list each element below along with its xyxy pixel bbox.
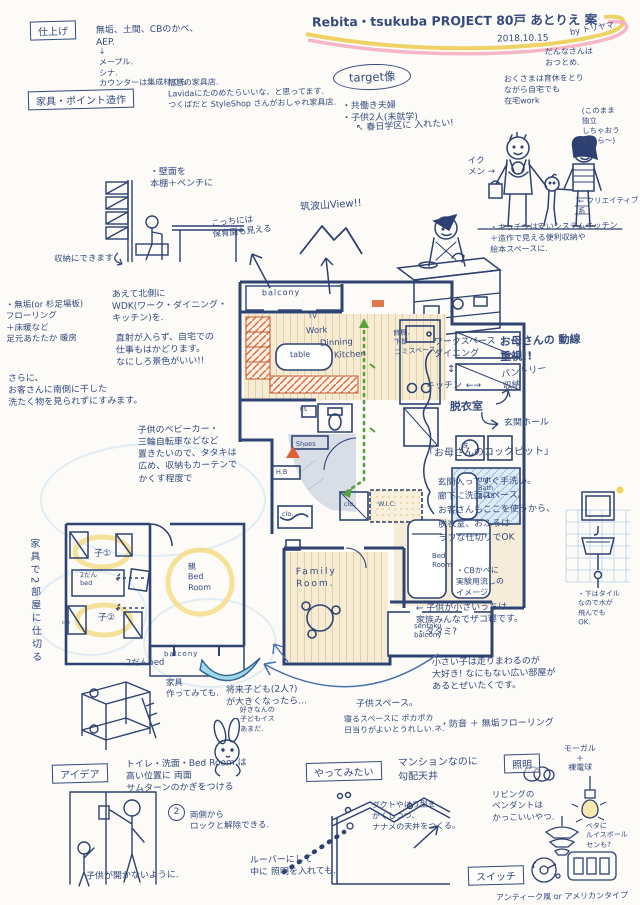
work-light-note: 直射が入らず、自宅での 仕事もはかどります。 なにしろ景色がいい!! — [116, 331, 215, 369]
flow-entrance-hall: 玄関ホール — [504, 417, 549, 430]
idea-lock-note: トイレ・洗面・Bed Room は 高い位置に 両面 サムターンのかぎをつける — [126, 757, 247, 796]
flow-pantry: パントリー 収納 — [501, 363, 549, 393]
antique-switch-sketch — [528, 854, 564, 890]
future-parent-label: 親 Bed Room — [188, 562, 211, 594]
creative-label: ← クリエイティブ 系 — [578, 195, 639, 216]
try-label-box: やってみたい — [306, 761, 382, 782]
furniture-label-box: 家具・ポイント造作 — [28, 89, 134, 111]
plan-shoes-label: Shoes — [296, 440, 316, 449]
target-solo-note: (このまま 独立 しちゃおう かしら〜) — [582, 106, 620, 147]
north-wdk-note: あえて北側に WDK(ワーク・ダイニング・ キッチン)を. — [112, 287, 228, 325]
flow-dressing-room: 脱衣室 — [450, 400, 483, 415]
plan-wic-label: W.I.C. — [378, 500, 396, 509]
idea-childproof-note: 子供が開かないように. — [86, 869, 179, 883]
plan-balcony-label: balcony — [262, 288, 300, 299]
plan-closet-label: clo. — [344, 500, 355, 509]
plan-tv-label: TV — [308, 312, 317, 322]
flow-updown-arrow: ↕ — [447, 363, 456, 377]
plan-table-label: table — [290, 350, 310, 361]
flow-leftright-arrow: ←→ — [466, 380, 481, 392]
mountain-view-note: 筑波山View!! — [300, 197, 363, 215]
soundproof-note: ・防音 ＋ 無垢フローリング — [440, 717, 554, 731]
cockpit-note: 「お母さんのコックピット」 — [424, 445, 554, 461]
louis-poulsen-note: ベタに ルイスポール センも? — [586, 822, 628, 851]
running-note: 小さい子は走りまわるのが 大好き! なにもない広い部屋が あるとぜいたくです。 — [432, 655, 556, 694]
ikumen-label: イク メン → — [468, 156, 495, 179]
idea-label-box: アイデア — [52, 763, 108, 783]
zakone-note: ← 子供が小さいうちは、 家族みんなでザコ寝です。 ・タタミ? — [416, 601, 524, 639]
future-balcony-label: balcony — [164, 650, 199, 660]
plan-hb-label: H.B — [276, 468, 287, 477]
sink-sketch — [558, 486, 640, 596]
bunkbed-label: 2だんbed — [126, 658, 165, 670]
future-child2-label: 子② — [98, 612, 115, 624]
target-husband-note: だんなさんは おつとめ. — [545, 47, 593, 69]
sloped-ceiling-note: マンションなのに 勾配天井 — [398, 755, 478, 783]
switch-label-box: スイッチ — [468, 865, 524, 885]
duct-note: ダクトやはり型を かくしつつ、 ナナメの天井をつくる。 — [372, 799, 460, 833]
lighting-label-box: 照明 — [504, 754, 540, 774]
tile-floor-note: ・下はタイル なので水が 飛んでも OK. — [578, 590, 621, 628]
plan-entry-closet-label: clo. — [282, 510, 293, 519]
shelf-trash-note: 飾棚. 下部 ゴミスペース — [393, 327, 436, 358]
furniture-note: 福島の家具店. Lavidaにたのめたらいいな、と思ってます. つくばだと St… — [168, 76, 336, 111]
louver-note: ルーバーにして 中に 照明を入れても. — [250, 853, 336, 879]
kids-chair-note: 好きなんの 子どもイス あまだ. — [240, 706, 275, 735]
entry-storage-note: 子供のベビーカー・ 三輪自転車などなど 置きたいので、タタキは 広め、収納もカー… — [137, 423, 237, 485]
american-switch-sketch — [566, 848, 620, 886]
living-pendant-note: リビングの ペンダントは かっこいいやつ. — [492, 789, 555, 824]
plan-dinning-label: Dinning — [320, 337, 353, 350]
switch-types-note: アンティーク風 or アメリカンタイプ — [496, 891, 628, 904]
bunkbed-sketch — [62, 666, 166, 768]
plan-ps-label: PS — [300, 407, 307, 415]
nursery-view-note: こっちには 保育園も見える — [211, 213, 272, 242]
sketch-page: Rebita・tsukuba PROJECT 80戸 あとりえ 案 2018.1… — [0, 0, 640, 905]
future-child1-label: 子① — [94, 548, 111, 560]
bench-storage-note: 収納にできます. — [54, 253, 116, 266]
idea-number-badge: 2 — [168, 804, 185, 821]
mother-flow-note: 玄関入ってすぐ手洗い。 廊下に洗面スペース。 お客さんもここを使うから、 脱衣室… — [437, 475, 555, 547]
plan-bed-room-label: Bed Room — [432, 552, 452, 571]
finish-label-box: 仕上げ — [30, 20, 76, 40]
cb-sink-note: ・CBかべに 実験用流しの イメージ — [456, 566, 505, 599]
future-clo-label: clo — [62, 620, 70, 628]
laundry-note: さらに、 お客さんに南側に干した 洗たく物を見られずにすみます。 — [8, 371, 143, 410]
flow-workspace: ワークスペース ダイニング — [434, 335, 496, 360]
kids-sun-note: 寝るスペースに ポカポカ 日当りがよいとうれしい.ネ. — [344, 713, 445, 736]
kids-space-note: 子供スペース。 — [356, 697, 418, 710]
idea-bothsides-note: 両側から ロックと解除できる. — [190, 809, 269, 833]
bunkbed-note: 家具 作ってみても. — [166, 678, 219, 702]
mogal-bulb-note: モーガル ＋ 裸電球 — [556, 744, 604, 774]
mother-circulation-title: お母さんの 動線 重視!! — [500, 333, 582, 365]
kitchen-idea-note: ・キッチンは安いシステムキッチン ＋造作で見える便利収納や 絵本スペースに. — [490, 221, 618, 256]
target-wife-note: おくさまは育休をとり ながら自宅でも 在宅work — [504, 73, 585, 107]
flow-kitchen: キッチン — [426, 380, 462, 393]
flooring-note: ・無垢(or 杉足場板) フローリング ＋床暖など 足元あたたか 暖房 — [6, 299, 84, 346]
bench-title: ・壁面を 本棚＋ベンチに — [150, 165, 213, 190]
title-date: 2018.10.15 — [497, 33, 549, 46]
plan-kitchen-label: Kitchen — [334, 349, 367, 362]
target-label-oval: target像 — [333, 63, 412, 92]
plan-family-room-label: Family Room. — [296, 566, 337, 591]
plan-work-label: Work — [306, 325, 328, 338]
future-bunk-label: 2だん bed — [80, 572, 97, 588]
